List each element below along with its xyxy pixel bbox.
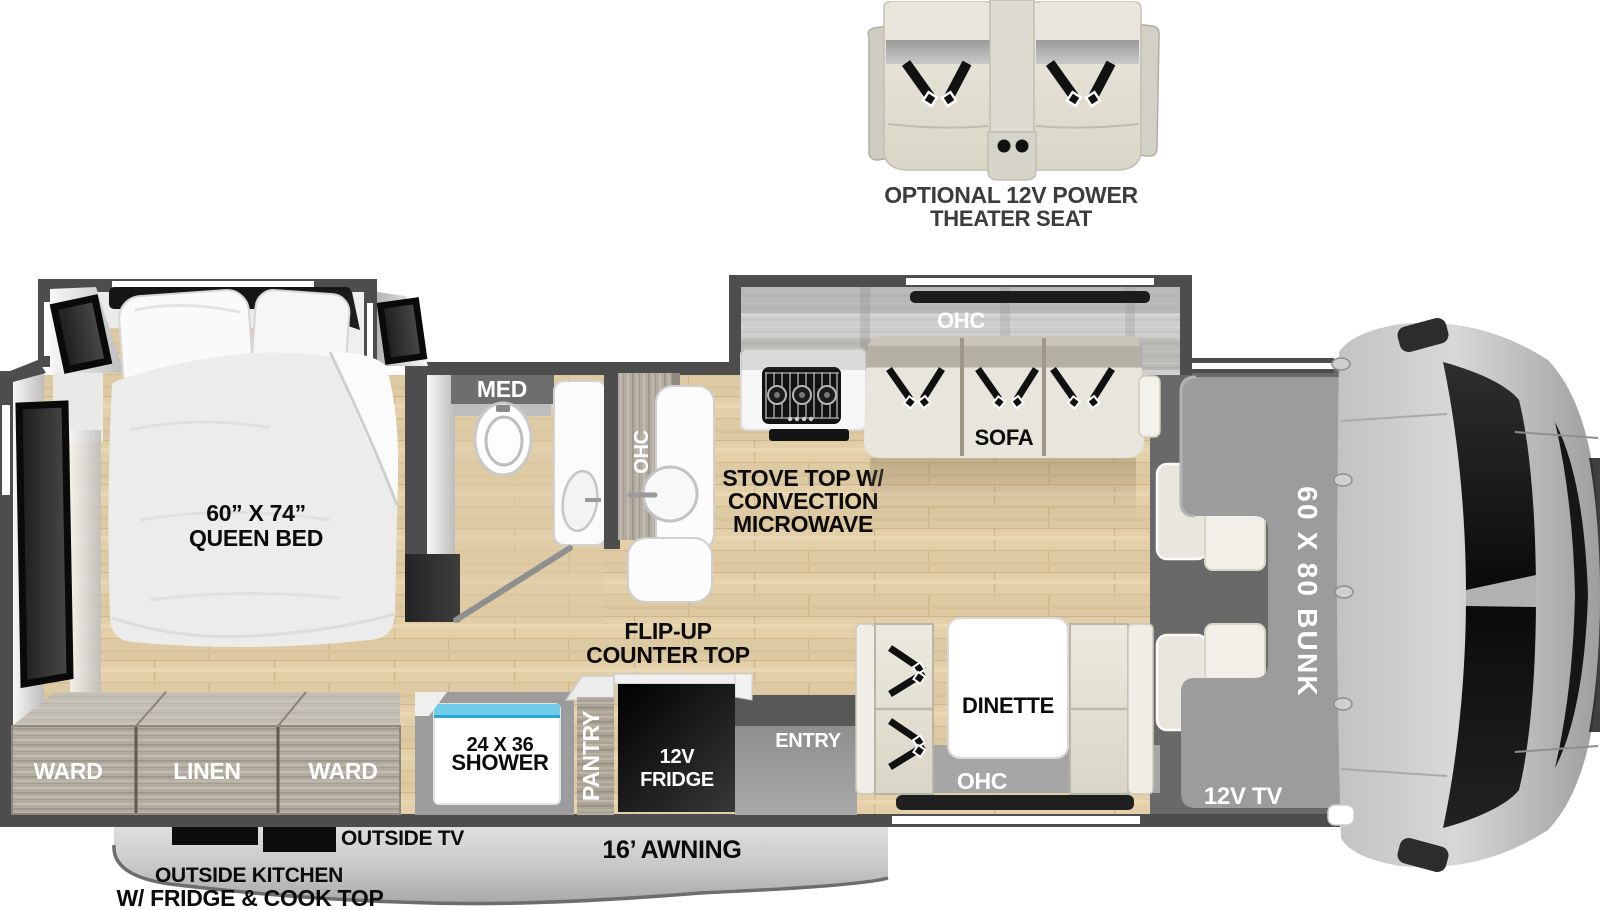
svg-text:SHOWER: SHOWER [451,750,549,775]
svg-text:OUTSIDE TV: OUTSIDE TV [341,827,464,850]
svg-text:OHC: OHC [957,768,1007,794]
svg-text:W/ FRIDGE & COOK TOP: W/ FRIDGE & COOK TOP [116,885,383,910]
svg-text:OHC: OHC [937,308,985,333]
svg-text:12V TV: 12V TV [1204,783,1283,810]
svg-text:DINETTE: DINETTE [962,693,1054,718]
svg-text:WARD: WARD [33,758,102,784]
svg-text:MICROWAVE: MICROWAVE [733,511,873,537]
svg-text:FRIDGE: FRIDGE [640,769,714,791]
svg-text:FLIP-UP: FLIP-UP [624,618,711,644]
svg-text:60” X 74”: 60” X 74” [206,500,306,526]
svg-text:MED: MED [477,376,527,402]
svg-text:THEATER SEAT: THEATER SEAT [930,206,1093,231]
svg-text:OHC: OHC [631,430,653,474]
svg-text:SOFA: SOFA [975,425,1034,450]
svg-text:12V: 12V [660,746,696,768]
svg-text:60 X 80 BUNK: 60 X 80 BUNK [1292,486,1323,698]
svg-text:LINEN: LINEN [173,758,241,784]
svg-text:ENTRY: ENTRY [775,730,842,752]
svg-text:PANTRY: PANTRY [578,711,604,801]
svg-text:OUTSIDE KITCHEN: OUTSIDE KITCHEN [155,864,343,887]
svg-text:16’ AWNING: 16’ AWNING [602,836,741,864]
svg-text:OPTIONAL 12V POWER: OPTIONAL 12V POWER [884,182,1138,208]
svg-text:WARD: WARD [308,758,377,784]
svg-text:QUEEN BED: QUEEN BED [189,525,323,551]
svg-text:COUNTER TOP: COUNTER TOP [586,642,750,668]
